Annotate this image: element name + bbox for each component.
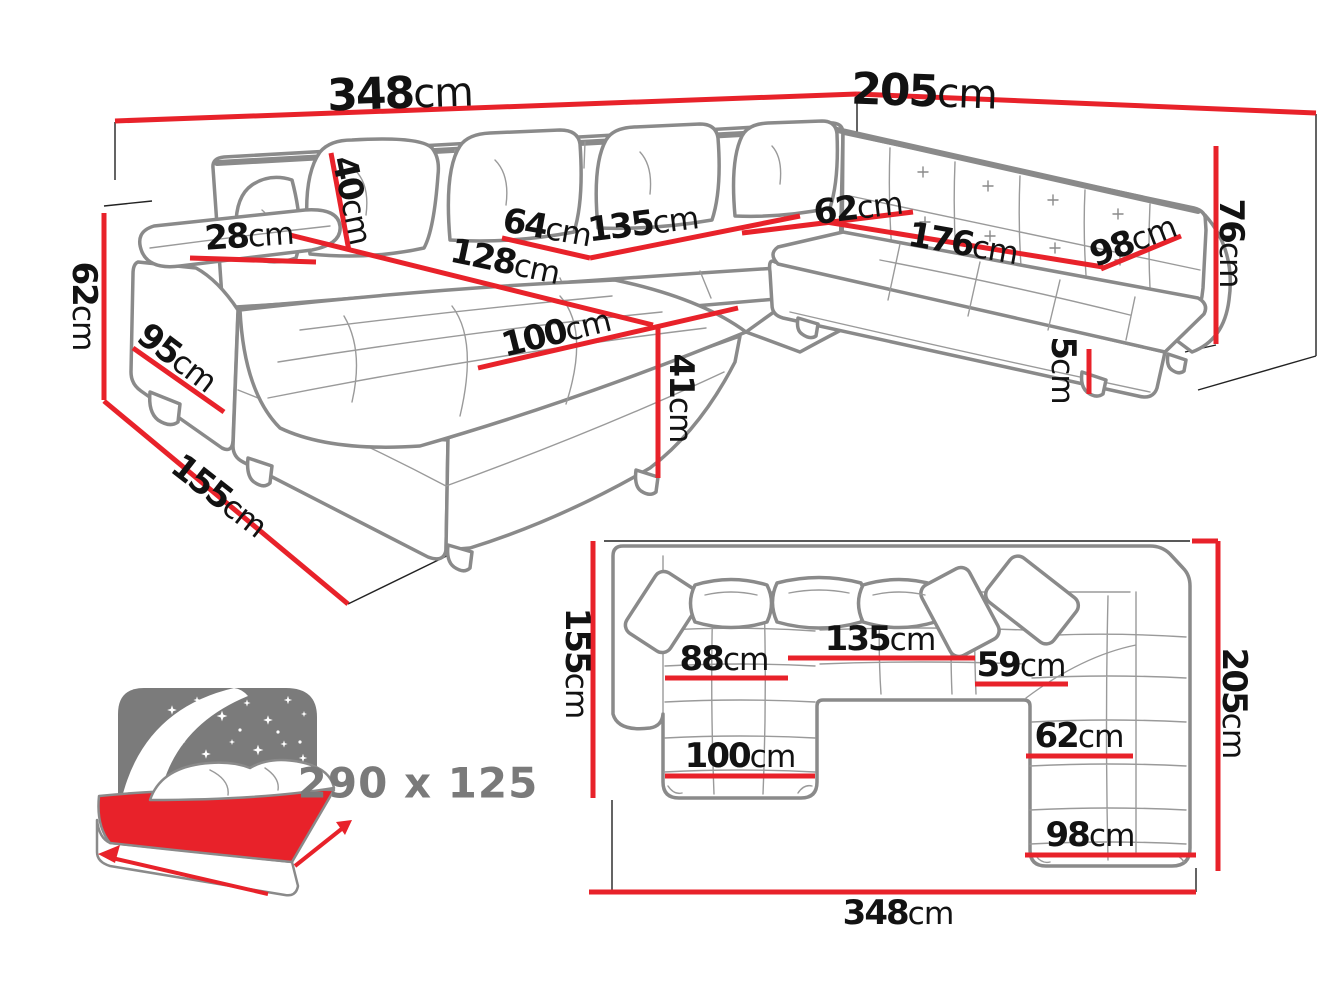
seat-width-middle-unit: cm — [651, 200, 701, 241]
plan-right-seat-unit: cm — [1078, 719, 1124, 755]
plan-total-width-value: 348 — [843, 893, 908, 933]
leg-height-unit: cm — [1044, 358, 1080, 404]
armrest-width-label: 28cm — [203, 216, 294, 256]
seat-depth-right-value: 62 — [811, 188, 859, 233]
plan-corner-seat-label: 59cm — [977, 648, 1066, 682]
plan-middle-seat-value: 135 — [825, 619, 890, 659]
plan-right-width-value: 98 — [1046, 815, 1089, 855]
seat-height-value: 41 — [661, 354, 701, 397]
plan-right-width-unit: cm — [1089, 818, 1135, 854]
side-height-value: 62 — [64, 262, 104, 305]
plan-depth-left-unit: cm — [558, 673, 594, 719]
plan-right-seat-value: 62 — [1035, 716, 1078, 756]
plan-depth-right-unit: cm — [1215, 713, 1251, 759]
plan-depth-left-label: 155cm — [560, 608, 594, 719]
side-height-unit: cm — [65, 305, 101, 351]
plan-right-seat-label: 62cm — [1035, 719, 1124, 753]
total-width-left-label: 348cm — [327, 69, 474, 118]
plan-right-width-label: 98cm — [1046, 818, 1135, 852]
leg-height-value: 5 — [1043, 336, 1083, 358]
total-width-left-unit: cm — [412, 67, 473, 117]
plan-chaise-seat-value: 88 — [680, 639, 723, 679]
side-height-label: 62cm — [67, 262, 101, 351]
sleeping-size-label: 290 x 125 — [298, 759, 539, 808]
plan-corner-seat-unit: cm — [1020, 648, 1066, 684]
seat-width-left-value: 64 — [500, 200, 550, 247]
total-width-right-label: 205cm — [851, 67, 998, 116]
backrest-height-label: 76cm — [1214, 199, 1248, 288]
plan-depth-right-value: 205 — [1214, 648, 1254, 713]
plan-depth-right-label: 205cm — [1217, 648, 1251, 759]
leg-height-label: 5cm — [1046, 336, 1080, 403]
armrest-width-value: 28 — [203, 216, 249, 259]
armrest-width-unit: cm — [247, 216, 295, 255]
plan-total-width-label: 348cm — [843, 896, 954, 930]
total-width-left-value: 348 — [326, 68, 414, 122]
seat-height-unit: cm — [662, 397, 698, 443]
total-width-right-unit: cm — [936, 68, 997, 118]
seat-width-right-unit: cm — [969, 229, 1020, 272]
seat-height-label: 41cm — [664, 354, 698, 443]
plan-chaise-seat-unit: cm — [723, 642, 769, 678]
total-width-right-value: 205 — [850, 63, 938, 117]
total-width-left-line — [115, 94, 857, 121]
sofa-dimension-diagram: 348cm205cm40cm28cm64cm135cm62cm176cm98cm… — [0, 0, 1322, 991]
plan-depth-left-value: 155 — [557, 608, 597, 673]
plan-chaise-width-label: 100cm — [685, 739, 796, 773]
perspective-sofa-drawing — [104, 96, 1316, 604]
plan-total-width-unit: cm — [908, 896, 954, 932]
plan-middle-seat-label: 135cm — [825, 622, 936, 656]
seat-width-middle-value: 135 — [586, 203, 655, 251]
seat-depth-right-unit: cm — [855, 186, 905, 227]
plan-chaise-width-unit: cm — [750, 739, 796, 775]
plan-corner-seat-value: 59 — [977, 645, 1020, 685]
backrest-height-value: 76 — [1211, 199, 1251, 242]
plan-chaise-seat-label: 88cm — [680, 642, 769, 676]
plan-middle-seat-unit: cm — [890, 622, 936, 658]
plan-chaise-width-value: 100 — [685, 736, 750, 776]
backrest-height-unit: cm — [1212, 242, 1248, 288]
